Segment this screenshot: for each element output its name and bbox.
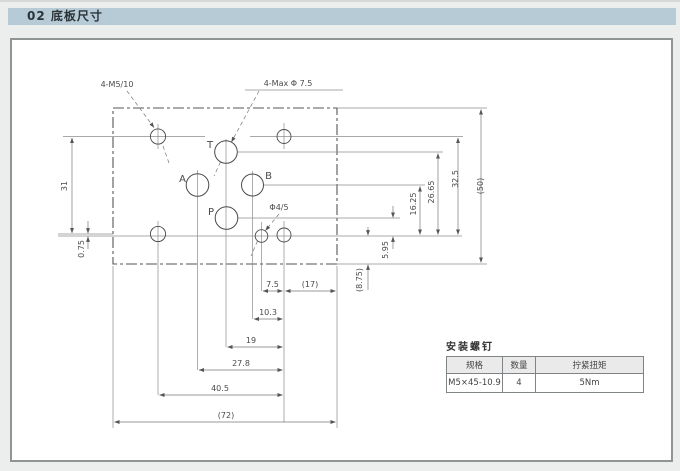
dim-label-31: 31 xyxy=(61,181,69,191)
dim-label-16-25: 16.25 xyxy=(410,193,418,216)
dim-label-50: (50) xyxy=(477,178,485,194)
port-label-b: B xyxy=(265,172,272,182)
dim-label-5-95: 5.95 xyxy=(382,241,390,259)
port-label-a: A xyxy=(179,175,186,185)
screw-torque-value: 5Nm xyxy=(536,374,644,393)
dim-label-7-5: 7.5 xyxy=(266,281,279,289)
screw-spec-value: M5×45-10.9 xyxy=(447,374,503,393)
plate-outline xyxy=(113,108,337,264)
dim-label-26-65: 26.65 xyxy=(428,181,436,204)
catalog-page: { "page": { "header_title": "02 底板尺寸" },… xyxy=(0,0,680,471)
subplate-dimension-drawing xyxy=(0,0,680,471)
dimension-lines xyxy=(72,110,481,423)
screw-table-header-torque: 拧紧扭矩 xyxy=(536,357,644,374)
screw-table-header-row: 规格 数量 拧紧扭矩 xyxy=(447,357,644,374)
dim-label-17: (17) xyxy=(302,281,318,289)
port-label-p: P xyxy=(208,208,214,218)
screw-table-title: 安装螺钉 xyxy=(446,338,494,353)
dim-label-0-75: 0.75 xyxy=(78,240,86,258)
screw-table-header-qty: 数量 xyxy=(503,357,536,374)
callout-mounting-holes: 4-M5/10 xyxy=(101,81,134,89)
dim-label-72: (72) xyxy=(218,412,234,420)
callout-pin-hole: Φ4/5 xyxy=(269,204,288,212)
screw-qty-value: 4 xyxy=(503,374,536,393)
callout-max-port-diameter: 4-Max Φ 7.5 xyxy=(264,80,313,88)
dim-label-27-8: 27.8 xyxy=(232,360,250,368)
screw-table: 规格 数量 拧紧扭矩 M5×45-10.9 4 5Nm xyxy=(446,356,644,393)
dim-label-8-75: (8.75) xyxy=(356,268,364,292)
dim-label-10-3: 10.3 xyxy=(259,309,277,317)
leader-lines xyxy=(127,91,279,256)
dim-label-40-5: 40.5 xyxy=(211,385,229,393)
screw-table-header-spec: 规格 xyxy=(447,357,503,374)
screw-table-data-row: M5×45-10.9 4 5Nm xyxy=(447,374,644,393)
port-label-t: T xyxy=(207,141,213,151)
extension-lines xyxy=(58,90,487,428)
dim-label-19: 19 xyxy=(246,337,256,345)
dim-label-32-5: 32.5 xyxy=(452,170,460,188)
